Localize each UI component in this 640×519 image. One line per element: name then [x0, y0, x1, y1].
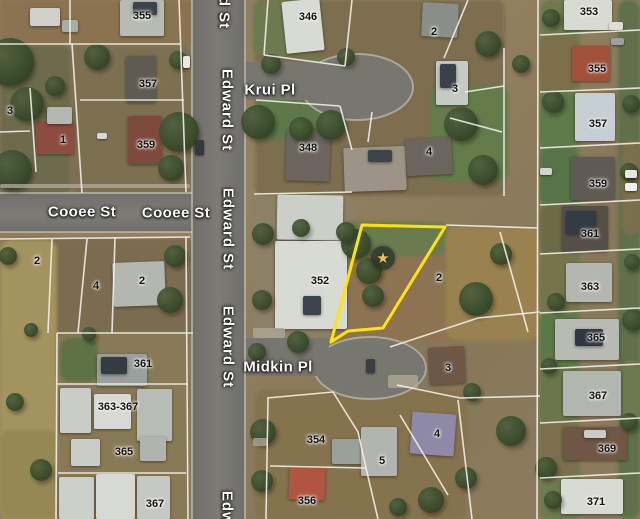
- lot-number-label: 3: [7, 105, 13, 117]
- lot-number-label: 2: [431, 26, 437, 38]
- lot-number-label: 359: [137, 139, 155, 151]
- street-label: Edward St: [219, 69, 236, 151]
- street-label: Krui Pl: [244, 82, 295, 99]
- street-label: Cooee St: [48, 204, 116, 221]
- lot-number-label: 348: [299, 142, 317, 154]
- lot-number-label: 363-367: [98, 401, 138, 413]
- lot-number-label: 371: [587, 496, 605, 508]
- satellite-map[interactable]: ★ Edward StEdward StEdward StEdward StEd…: [0, 0, 640, 519]
- street-label: Edward St: [216, 0, 233, 29]
- lot-number-label: 369: [598, 443, 616, 455]
- lot-number-label: 2: [436, 272, 442, 284]
- lot-number-label: 367: [146, 498, 164, 510]
- lot-number-label: 365: [115, 446, 133, 458]
- lot-number-label: 355: [588, 63, 606, 75]
- lot-number-label: 352: [311, 275, 329, 287]
- lot-number-label: 4: [426, 146, 432, 158]
- lot-number-label: 353: [580, 6, 598, 18]
- lot-number-label: 5: [379, 455, 385, 467]
- lot-number-label: 359: [589, 178, 607, 190]
- street-label: Edward St: [220, 306, 237, 388]
- street-label: Edward St: [219, 491, 236, 519]
- lot-number-label: 3: [445, 362, 451, 374]
- lot-number-label: 367: [589, 390, 607, 402]
- lot-number-label: 2: [139, 275, 145, 287]
- lot-number-label: 365: [587, 332, 605, 344]
- lot-number-label: 4: [434, 428, 440, 440]
- lot-number-label: 4: [93, 280, 99, 292]
- lot-number-label: 346: [299, 11, 317, 23]
- lot-number-label: 1: [60, 134, 66, 146]
- lot-number-label: 363: [581, 281, 599, 293]
- lot-number-label: 2: [34, 255, 40, 267]
- street-label: Edward St: [220, 188, 237, 270]
- lot-number-label: 361: [581, 228, 599, 240]
- lot-number-label: 357: [589, 118, 607, 130]
- labels-layer: Edward StEdward StEdward StEdward StEdwa…: [0, 0, 640, 519]
- lot-number-label: 361: [134, 358, 152, 370]
- lot-number-label: 3: [452, 83, 458, 95]
- street-label: Cooee St: [142, 205, 210, 222]
- lot-number-label: 356: [298, 495, 316, 507]
- street-label: Midkin Pl: [243, 359, 312, 376]
- lot-number-label: 355: [133, 10, 151, 22]
- lot-number-label: 354: [307, 434, 325, 446]
- lot-number-label: 357: [139, 78, 157, 90]
